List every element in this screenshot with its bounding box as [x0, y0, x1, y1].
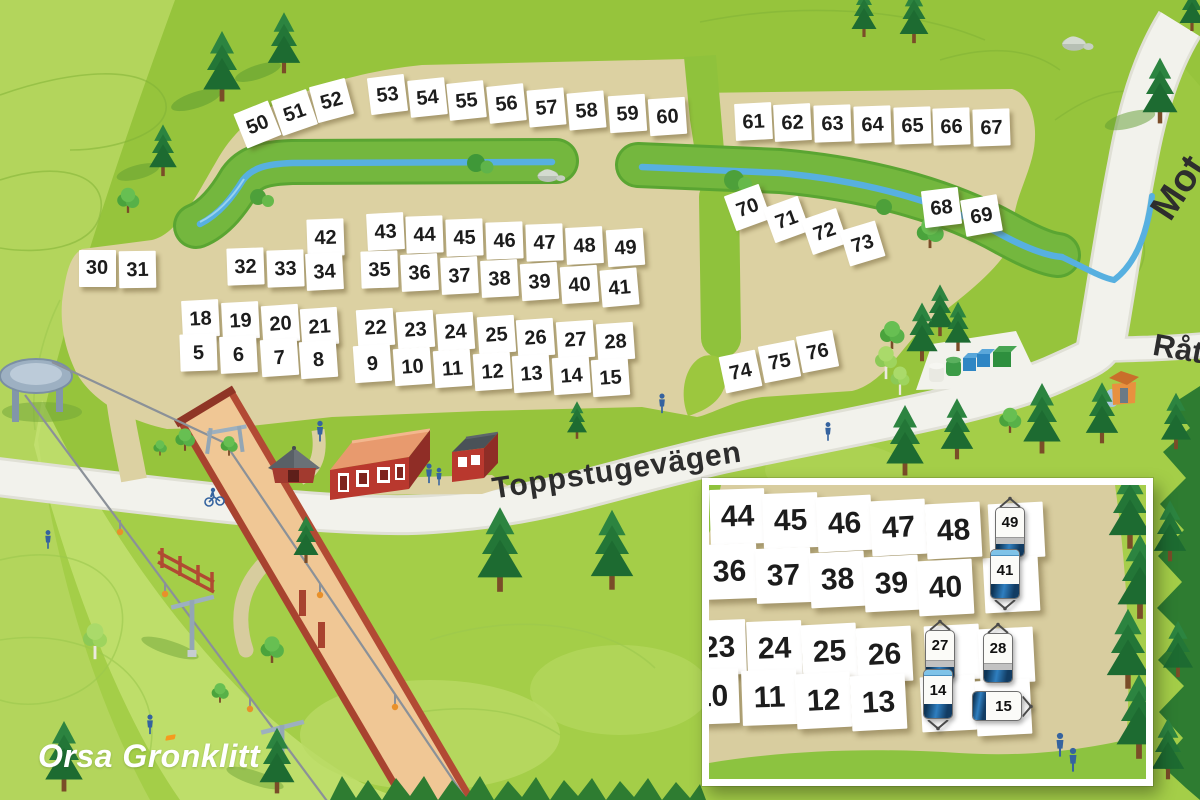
- plot-marker-73[interactable]: 73: [839, 220, 885, 266]
- caravan-plot-41[interactable]: 41: [990, 549, 1020, 611]
- plot-marker-42[interactable]: 42: [306, 218, 344, 256]
- plot-marker-44[interactable]: 44: [709, 488, 765, 545]
- plot-marker-46[interactable]: 46: [485, 221, 523, 259]
- plot-marker-39[interactable]: 39: [862, 554, 920, 612]
- plot-marker-61[interactable]: 61: [734, 102, 773, 141]
- plot-marker-36[interactable]: 36: [400, 253, 439, 292]
- plot-marker-46[interactable]: 46: [815, 494, 873, 552]
- plot-marker-62[interactable]: 62: [773, 103, 812, 142]
- plot-marker-24[interactable]: 24: [746, 620, 803, 677]
- plot-marker-19[interactable]: 19: [221, 301, 260, 340]
- plot-marker-67[interactable]: 67: [972, 108, 1010, 146]
- plot-marker-26[interactable]: 26: [515, 317, 554, 356]
- plot-marker-58[interactable]: 58: [566, 90, 606, 130]
- plot-marker-40[interactable]: 40: [559, 264, 598, 303]
- plot-marker-32[interactable]: 32: [226, 247, 264, 285]
- plot-marker-39[interactable]: 39: [519, 261, 558, 300]
- plot-marker-41[interactable]: 41: [599, 267, 639, 307]
- inset-zoom-panel: 4445464748363738394023242526101112134941…: [702, 478, 1153, 786]
- plot-marker-27[interactable]: 27: [555, 319, 594, 358]
- campground-map: 5051525354555657585960616263646566676869…: [0, 0, 1200, 800]
- plot-marker-64[interactable]: 64: [853, 105, 891, 143]
- plot-marker-11[interactable]: 11: [741, 669, 798, 726]
- plot-marker-35[interactable]: 35: [360, 250, 398, 288]
- plot-marker-33[interactable]: 33: [266, 249, 304, 287]
- plot-marker-14[interactable]: 14: [551, 355, 590, 394]
- plot-marker-68[interactable]: 68: [920, 186, 961, 227]
- plot-marker-23[interactable]: 23: [709, 619, 746, 676]
- plot-marker-9[interactable]: 9: [352, 343, 391, 382]
- plot-marker-10[interactable]: 10: [392, 346, 431, 385]
- plot-marker-59[interactable]: 59: [607, 93, 646, 132]
- plot-marker-10[interactable]: 10: [709, 668, 739, 725]
- plot-marker-22[interactable]: 22: [355, 307, 394, 346]
- plot-marker-12[interactable]: 12: [794, 671, 852, 729]
- plot-marker-36[interactable]: 36: [709, 543, 757, 600]
- plot-marker-15[interactable]: 15: [590, 357, 629, 396]
- inset-zoom-content: 4445464748363738394023242526101112134941…: [709, 485, 1146, 779]
- plot-marker-45[interactable]: 45: [762, 492, 819, 549]
- caravan-plot-14[interactable]: 14: [923, 669, 953, 731]
- plot-marker-24[interactable]: 24: [435, 311, 474, 350]
- inset-items-layer: 4445464748363738394023242526101112134941…: [709, 485, 1146, 779]
- plot-marker-25[interactable]: 25: [476, 314, 515, 353]
- logo-accent-o: o: [161, 738, 181, 775]
- plot-marker-13[interactable]: 13: [511, 353, 550, 392]
- plot-marker-66[interactable]: 66: [932, 107, 970, 145]
- plot-marker-20[interactable]: 20: [260, 303, 299, 342]
- plot-marker-37[interactable]: 37: [755, 547, 812, 604]
- plot-marker-11[interactable]: 11: [432, 348, 471, 387]
- plot-marker-48[interactable]: 48: [924, 501, 982, 559]
- plot-marker-44[interactable]: 44: [405, 215, 443, 253]
- plot-marker-53[interactable]: 53: [366, 73, 407, 114]
- plot-marker-37[interactable]: 37: [440, 256, 479, 295]
- plot-marker-7[interactable]: 7: [259, 337, 298, 376]
- plot-marker-30[interactable]: 30: [79, 250, 116, 287]
- plot-marker-43[interactable]: 43: [366, 212, 405, 251]
- plot-marker-38[interactable]: 38: [808, 550, 866, 608]
- plot-marker-48[interactable]: 48: [565, 226, 604, 265]
- plot-marker-60[interactable]: 60: [647, 96, 686, 135]
- plot-marker-65[interactable]: 65: [893, 106, 931, 144]
- plot-marker-75[interactable]: 75: [757, 339, 800, 382]
- plot-marker-63[interactable]: 63: [813, 104, 851, 142]
- plot-marker-13[interactable]: 13: [849, 673, 907, 731]
- plot-marker-47[interactable]: 47: [869, 498, 927, 556]
- plot-marker-23[interactable]: 23: [395, 309, 434, 348]
- plot-marker-55[interactable]: 55: [446, 80, 487, 121]
- plot-marker-5[interactable]: 5: [179, 333, 217, 371]
- orsa-gronklitt-logo: Orsa Gronklitt: [38, 738, 260, 775]
- plot-marker-54[interactable]: 54: [407, 77, 448, 118]
- plot-marker-28[interactable]: 28: [595, 321, 634, 360]
- plot-marker-47[interactable]: 47: [525, 223, 563, 261]
- plot-marker-8[interactable]: 8: [298, 339, 337, 378]
- plot-marker-18[interactable]: 18: [181, 299, 220, 338]
- plot-marker-40[interactable]: 40: [916, 558, 974, 616]
- plot-marker-45[interactable]: 45: [445, 218, 483, 256]
- caravan-plot-28[interactable]: 28: [983, 622, 1013, 684]
- plot-marker-31[interactable]: 31: [118, 250, 156, 288]
- plot-marker-76[interactable]: 76: [795, 329, 838, 372]
- plot-marker-57[interactable]: 57: [526, 87, 566, 127]
- plot-marker-49[interactable]: 49: [605, 227, 644, 266]
- plot-marker-69[interactable]: 69: [960, 194, 1003, 237]
- plot-marker-6[interactable]: 6: [219, 335, 258, 374]
- plot-marker-56[interactable]: 56: [486, 83, 527, 124]
- plot-marker-34[interactable]: 34: [305, 252, 344, 291]
- plot-marker-38[interactable]: 38: [480, 259, 519, 298]
- plot-marker-74[interactable]: 74: [718, 349, 762, 393]
- plot-marker-12[interactable]: 12: [472, 351, 511, 390]
- caravan-plot-15[interactable]: 15: [971, 691, 1033, 721]
